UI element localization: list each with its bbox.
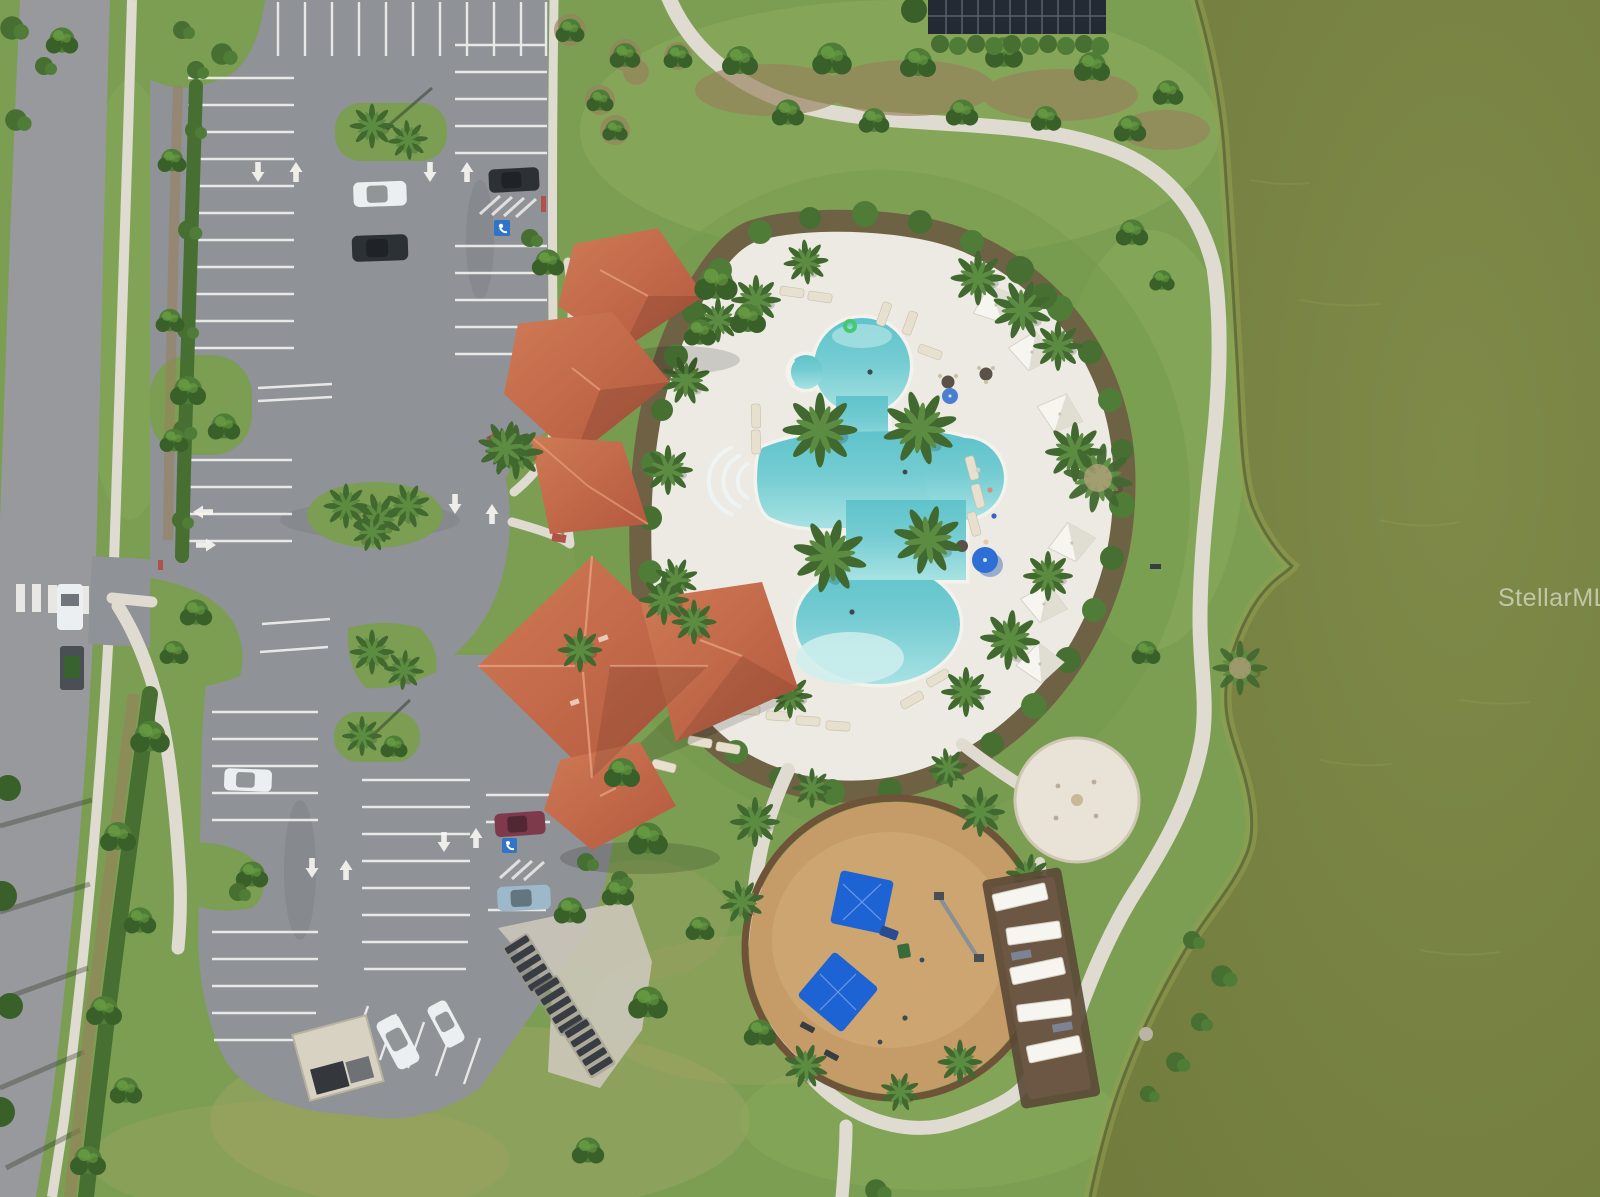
splash-pad: [1015, 738, 1139, 862]
path-south-spur: [842, 1126, 846, 1197]
watermark: StellarMLS: [1498, 584, 1600, 613]
path-crosswalk-link: [112, 598, 152, 602]
blue-truck: [497, 884, 551, 911]
aerial-photo: StellarMLS: [0, 0, 1600, 1197]
beach-entry: [796, 632, 904, 684]
neighbor-building: [901, 0, 1109, 55]
dark-suv-2: [488, 167, 540, 193]
white-suv: [353, 181, 407, 208]
handicap-symbol-lower: [502, 838, 517, 853]
maroon-car: [494, 811, 546, 838]
white-pickup: [224, 768, 272, 792]
bench: [1150, 564, 1161, 569]
handicap-symbol: [494, 220, 510, 236]
scene: [0, 0, 1600, 1197]
palm-island: [335, 103, 447, 161]
dark-suv: [352, 234, 409, 262]
red-curb: [541, 196, 546, 212]
rock: [1139, 1027, 1153, 1041]
